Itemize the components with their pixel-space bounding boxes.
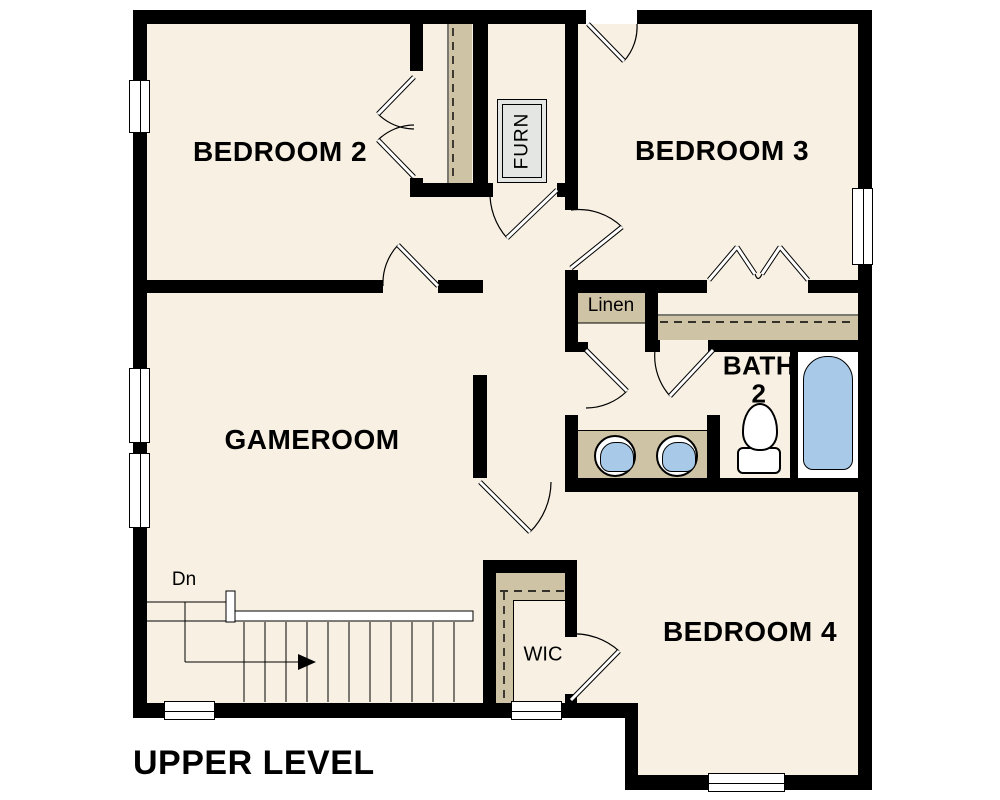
wall-wic-right [565, 573, 577, 637]
sink-basin [600, 442, 634, 472]
wall-wic-left [483, 560, 496, 703]
wall-linen-hinge-stub [578, 342, 588, 352]
bedroom2-label: BEDROOM 2 [193, 136, 367, 168]
wall-bath-top-left [645, 340, 660, 352]
bedroom3-label: BEDROOM 3 [635, 135, 809, 167]
vanity-sink-right [656, 435, 698, 477]
wall-bath-bottom [565, 478, 872, 492]
wall-bedroom2-right-upper [410, 24, 423, 71]
wall-closet-bottom [423, 183, 493, 197]
window-stairs-bottom [164, 701, 215, 720]
window-bedroom4-bottom [708, 773, 785, 792]
wall-vanity-toilet-divider [707, 415, 720, 480]
toilet-bowl [742, 403, 778, 451]
sink-basin [662, 442, 696, 472]
toilet-tank [737, 447, 781, 474]
floor-bedroom4-extension [638, 703, 858, 775]
wall-gameroom-right [473, 375, 487, 478]
bedroom3-closet-shelf [658, 316, 858, 340]
bath-label-line2: 2 [752, 379, 767, 410]
furnace-unit: FURN [497, 99, 547, 183]
window-gameroom-left-2 [129, 453, 150, 528]
wall-bedroom2-right-lower [410, 178, 423, 197]
gameroom-label: GAMEROOM [224, 424, 399, 456]
wall-bedroom3-bottom-left [578, 280, 707, 293]
window-gameroom-left-1 [129, 368, 150, 443]
plan-title: UPPER LEVEL [133, 744, 375, 783]
wall-exterior-top-left [133, 10, 586, 24]
window-wic-bottom [511, 701, 562, 720]
wall-bedroom2-gameroom-left [133, 280, 383, 293]
wic-label: WIC [524, 644, 563, 667]
floor-plan: FURN [0, 0, 1000, 800]
vanity-sink-left [594, 435, 636, 477]
bedroom4-label: BEDROOM 4 [663, 616, 837, 648]
bath-label-line1: BATH [723, 351, 795, 382]
window-bedroom2-left [129, 80, 150, 133]
furnace-inner-box: FURN [502, 104, 542, 178]
bathtub [803, 356, 853, 470]
window-bedroom3-right [852, 188, 873, 265]
wall-vanity-left [565, 415, 578, 480]
wall-wic-top [483, 560, 577, 573]
wall-wic-right-stub [565, 694, 577, 705]
stairs-down-label: Dn [172, 569, 196, 591]
wall-bedroom4-step [625, 703, 638, 790]
furnace-label: FURN [511, 113, 533, 170]
wall-closet-divider [473, 24, 488, 183]
wall-hall-east-upper [565, 24, 578, 210]
wall-bedroom3-bottom-right [808, 280, 872, 293]
bedroom2-closet-shelf [449, 24, 472, 184]
wall-hall-east-mid [565, 270, 578, 352]
wall-bedroom2-gameroom-right [438, 280, 483, 293]
linen-label: Linen [588, 295, 635, 317]
wall-exterior-top-right [637, 10, 872, 24]
wall-exterior-right [858, 10, 872, 790]
